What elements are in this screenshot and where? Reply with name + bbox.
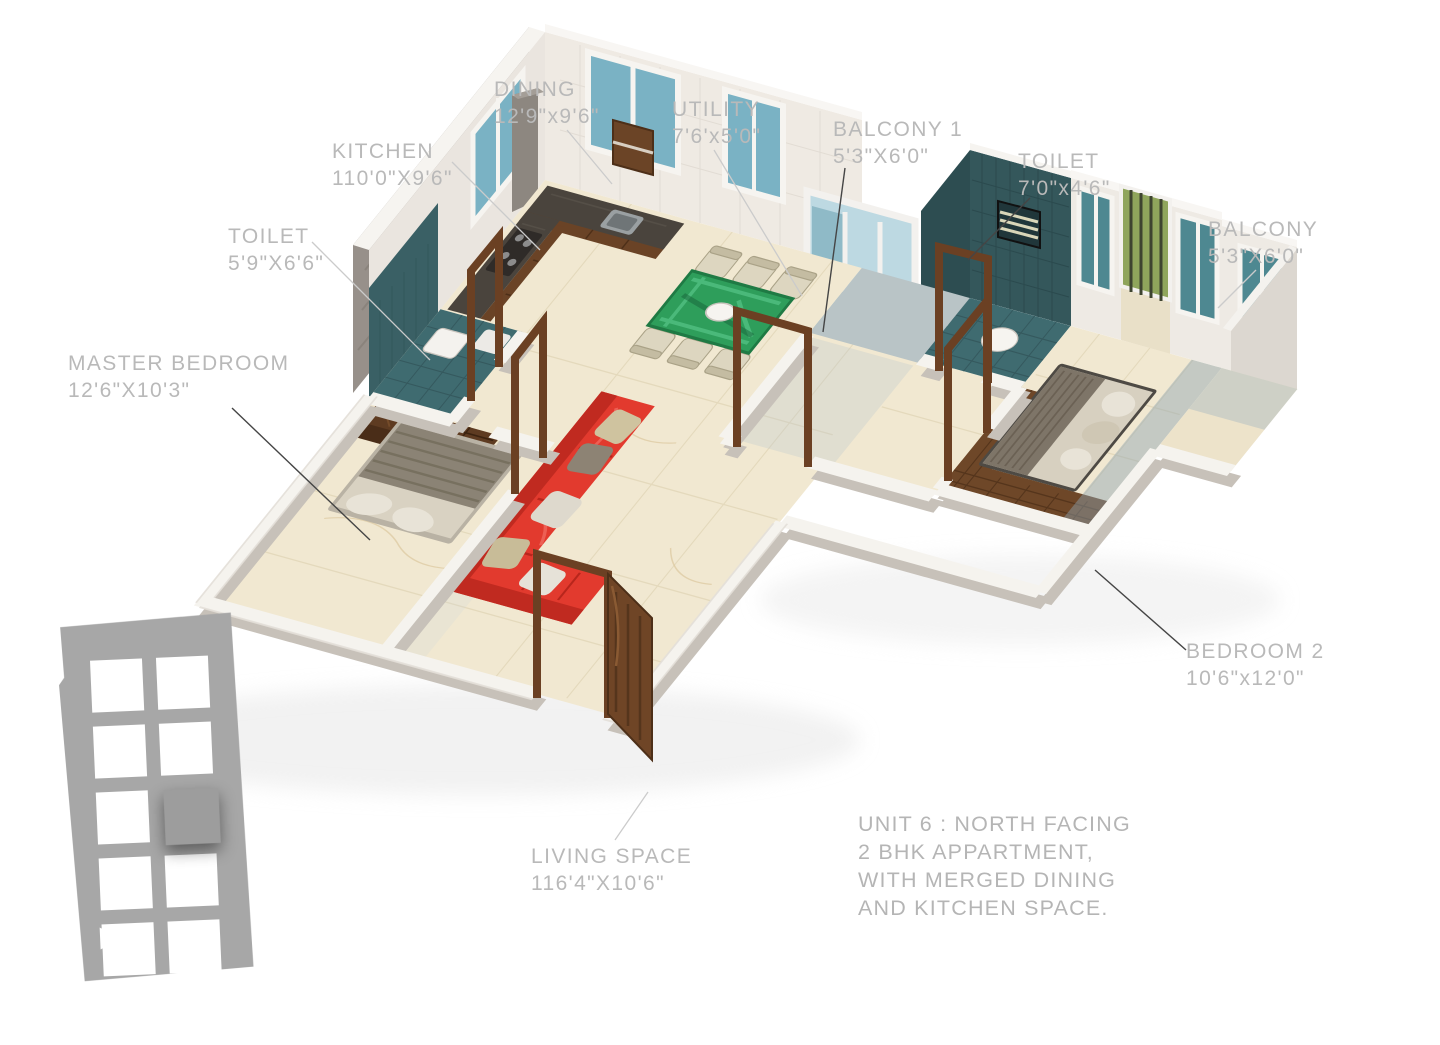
north-arrow-icon xyxy=(100,927,121,950)
label-bedroom-2: BEDROOM 2 10'6"x12'0" xyxy=(1186,638,1325,692)
unit-description-line: UNIT 6 : NORTH FACING xyxy=(858,810,1131,838)
room-dims: 5'9"X6'6" xyxy=(228,250,324,277)
label-balcony-1: BALCONY 1 5'3"X6'0" xyxy=(833,116,963,170)
room-name: DINING xyxy=(494,78,576,101)
room-name: BALCONY xyxy=(1208,218,1318,241)
label-toilet-left: TOILET 5'9"X6'6" xyxy=(228,223,324,277)
room-dims: 116'4"X10'6" xyxy=(531,870,692,897)
floorplan-render-page: KITCHEN 110'0"X9'6" DINING 12'9"x9'6" UT… xyxy=(0,0,1440,1045)
unit-description: UNIT 6 : NORTH FACING 2 BHK APPARTMENT, … xyxy=(858,810,1131,922)
locator-cell-highlighted xyxy=(163,788,220,845)
locator-cell xyxy=(165,853,219,907)
room-name: UTILITY xyxy=(672,98,760,121)
room-dims: 12'6"X10'3" xyxy=(68,377,289,404)
locator-cell xyxy=(93,724,147,778)
room-dims: 110'0"X9'6" xyxy=(332,165,453,192)
room-dims: 5'3"X6'0" xyxy=(833,143,963,170)
label-living-space: LIVING SPACE 116'4"X10'6" xyxy=(531,843,692,897)
locator-cell xyxy=(167,919,221,973)
label-kitchen: KITCHEN 110'0"X9'6" xyxy=(332,138,453,192)
room-name: KITCHEN xyxy=(332,140,434,163)
room-name: BEDROOM 2 xyxy=(1186,640,1325,663)
label-balcony-right: BALCONY 5'3"X6'0" xyxy=(1208,216,1318,270)
north-label: N xyxy=(124,923,148,952)
room-dims: 7'6'x5'0" xyxy=(672,123,761,150)
locator-cell xyxy=(96,790,150,844)
room-name: BALCONY 1 xyxy=(833,118,963,141)
locator-cell xyxy=(90,658,144,712)
unit-description-line: AND KITCHEN SPACE. xyxy=(858,894,1131,922)
room-dims: 5'3"X6'0" xyxy=(1208,243,1318,270)
unit-description-line: 2 BHK APPARTMENT, xyxy=(858,838,1131,866)
locator-cell xyxy=(159,721,213,775)
building-unit-locator: N xyxy=(56,612,254,982)
room-name: MASTER BEDROOM xyxy=(68,352,289,375)
unit-description-line: WITH MERGED DINING xyxy=(858,866,1131,894)
locator-cell xyxy=(99,856,153,910)
room-dims: 10'6"x12'0" xyxy=(1186,665,1325,692)
label-toilet-right: TOILET 7'0"x4'6" xyxy=(1018,148,1111,202)
room-name: LIVING SPACE xyxy=(531,845,692,868)
room-dims: 12'9"x9'6" xyxy=(494,103,600,130)
locator-grid xyxy=(90,656,219,919)
room-name: TOILET xyxy=(1018,150,1100,173)
room-name: TOILET xyxy=(228,225,310,248)
room-dims: 7'0"x4'6" xyxy=(1018,175,1111,202)
label-dining: DINING 12'9"x9'6" xyxy=(494,76,600,130)
label-master-bedroom: MASTER BEDROOM 12'6"X10'3" xyxy=(68,350,289,404)
locator-cell xyxy=(156,656,210,710)
label-utility: UTILITY 7'6'x5'0" xyxy=(672,96,761,150)
north-indicator: N xyxy=(100,923,148,954)
